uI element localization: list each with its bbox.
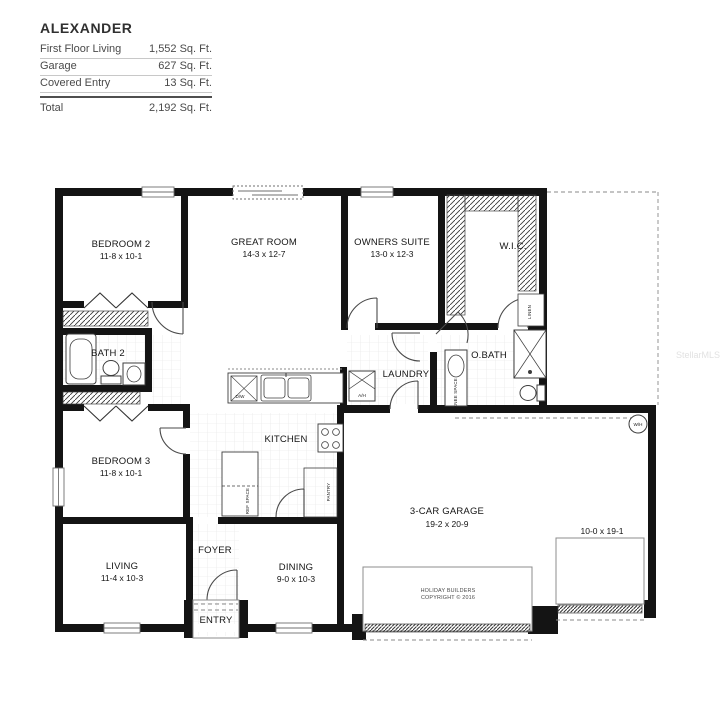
- label-kitchen: KITCHEN: [264, 434, 307, 445]
- label-bath2: BATH 2: [91, 348, 125, 359]
- label-air-handler: A/H: [358, 393, 366, 398]
- label-owners-suite: OWNERS SUITE: [354, 237, 430, 248]
- dims-bedroom3: 11-8 x 10-1: [100, 468, 143, 478]
- window-living: [104, 623, 140, 633]
- label-entry: ENTRY: [199, 615, 232, 626]
- label-foyer: FOYER: [198, 545, 232, 556]
- bathtub: [66, 334, 96, 384]
- label-laundry: LAUNDRY: [383, 369, 430, 380]
- door-owners-suite: [347, 298, 377, 328]
- window-bedroom3: [53, 468, 64, 506]
- dims-bedroom2: 11-8 x 10-1: [100, 251, 143, 261]
- label-obath: O.BATH: [471, 350, 507, 361]
- toilet-obath: [520, 385, 545, 401]
- door-bedroom3: [160, 428, 186, 454]
- label-great-room: GREAT ROOM: [231, 237, 297, 248]
- label-bedroom3: BEDROOM 3: [92, 456, 151, 467]
- label-knee-space: KNEE SPACE: [453, 378, 458, 408]
- sink-bath2: [123, 363, 145, 385]
- dims-owners-suite: 13-0 x 12-3: [371, 249, 414, 259]
- toilet-bath2: [101, 361, 121, 385]
- shower-obath: [514, 330, 546, 378]
- label-water-heater: W/H: [634, 422, 643, 427]
- sliding-glass-door: [233, 186, 303, 199]
- label-living: LIVING: [106, 561, 138, 572]
- mls-watermark: StellarMLS: [676, 350, 720, 360]
- copyright-line2: COPYRIGHT © 2016: [421, 594, 475, 601]
- copyright-line1: HOLIDAY BUILDERS: [421, 588, 476, 594]
- window-bedroom2: [142, 187, 174, 197]
- label-wic: W.I.C.: [499, 241, 526, 252]
- window-dining: [276, 623, 312, 633]
- label-pantry: PANTRY: [326, 483, 331, 502]
- dims-garage: 19-2 x 20-9: [426, 519, 469, 529]
- label-dishwasher: D/W: [236, 394, 246, 399]
- dims-great-room: 14-3 x 12-7: [243, 249, 286, 259]
- garage-door-bay: [556, 538, 644, 604]
- refrigerator-space: [222, 452, 258, 516]
- label-linen: LINEN: [527, 305, 532, 319]
- label-ref-space: REF SPACE: [245, 488, 250, 514]
- label-garage: 3-CAR GARAGE: [410, 506, 484, 517]
- range: [318, 424, 343, 452]
- label-bedroom2: BEDROOM 2: [92, 239, 151, 250]
- floorplan-drawing: BEDROOM 2 11-8 x 10-1 GREAT ROOM 14-3 x …: [0, 0, 720, 720]
- dims-dining: 9-0 x 10-3: [277, 574, 316, 584]
- kitchen-sink: [261, 373, 311, 401]
- dims-garage-bay: 10-0 x 19-1: [581, 526, 624, 536]
- garage-doors: [363, 538, 644, 632]
- label-dining: DINING: [279, 562, 313, 573]
- window-owners-suite: [361, 187, 393, 197]
- dims-living: 11-4 x 10-3: [101, 573, 144, 583]
- floorplan-sheet: ALEXANDER First Floor Living 1,552 Sq. F…: [0, 0, 720, 720]
